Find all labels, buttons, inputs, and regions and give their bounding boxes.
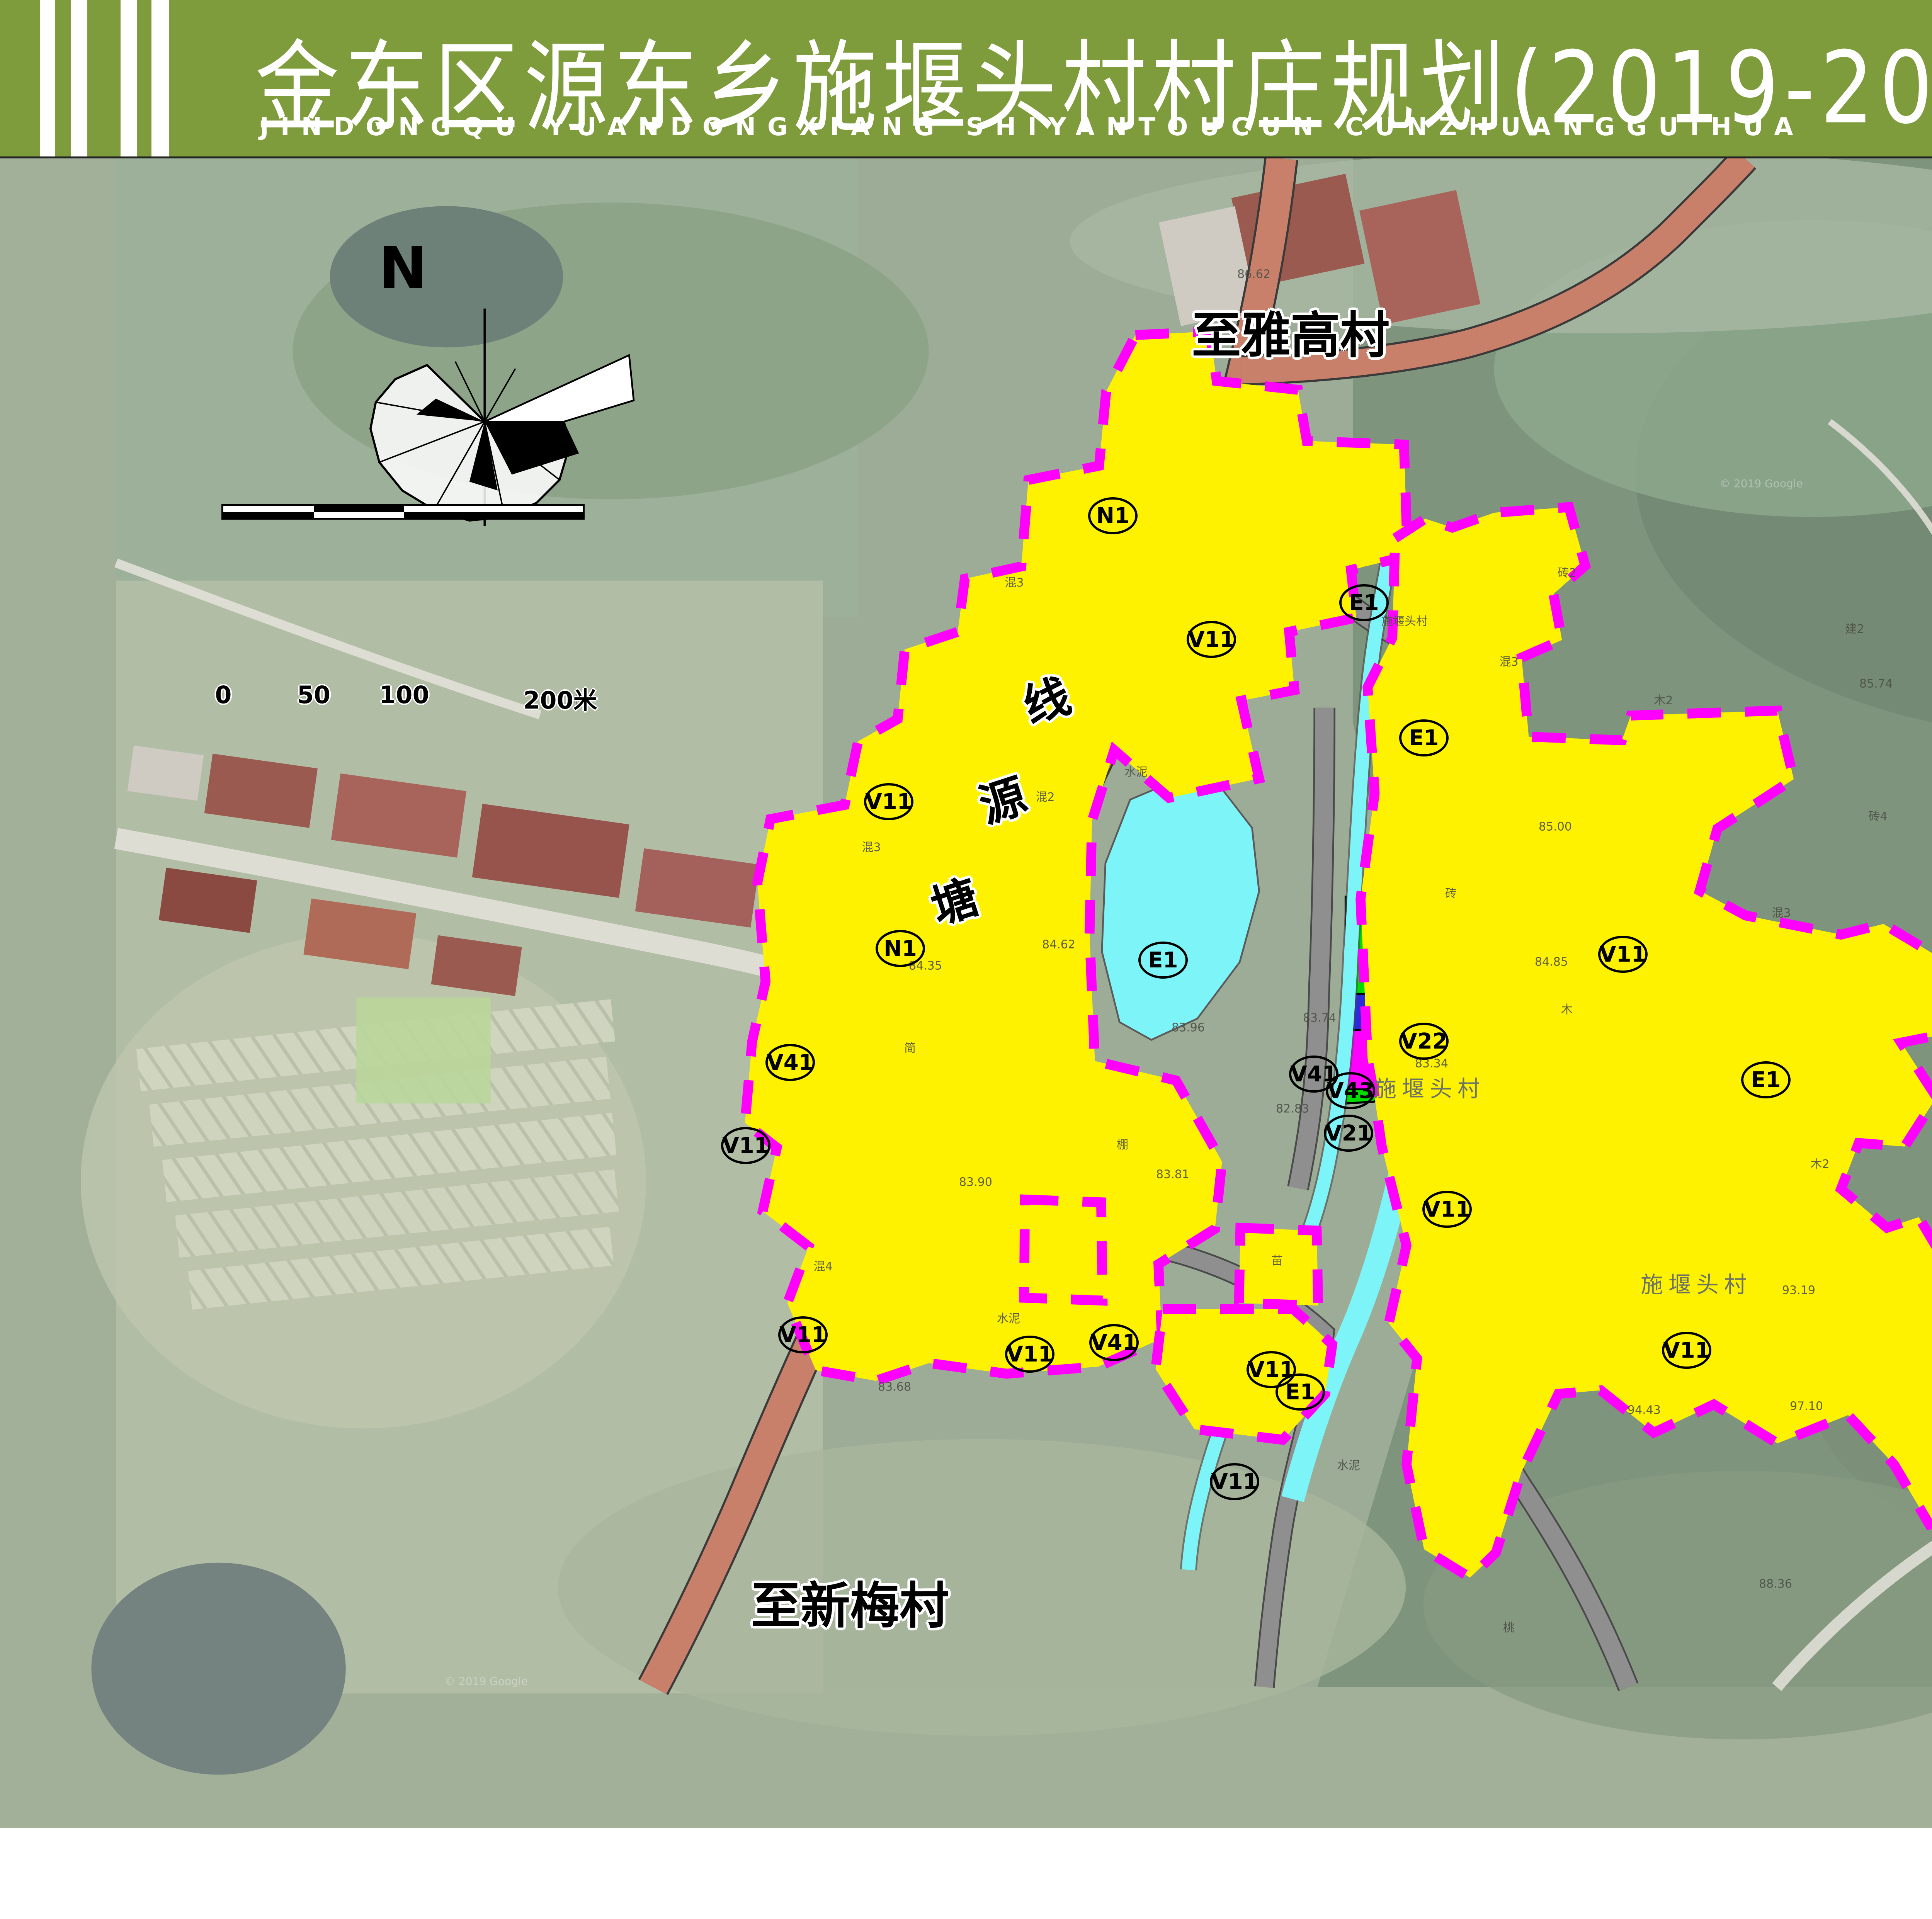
map-annotation: 83.68 bbox=[878, 1380, 911, 1394]
map-annotation: 85.00 bbox=[1539, 820, 1572, 834]
map-annotation: 简 bbox=[904, 1039, 916, 1056]
map-annotation: 施堰头村 bbox=[1381, 612, 1428, 629]
map-annotation: 木2 bbox=[1654, 691, 1673, 708]
map-annotation: 建2 bbox=[1845, 619, 1864, 636]
direction-label-xinmei: 至新梅村 bbox=[751, 1566, 949, 1637]
map-annotation: 苗 bbox=[1271, 1251, 1283, 1268]
zone-marker-v41: V41 bbox=[1089, 1324, 1139, 1361]
zone-marker-v11: V11 bbox=[1422, 1191, 1472, 1228]
header-band: 金东区源东乡施堰头村村庄规划(2019-2035) JINDONGQU YUAN… bbox=[0, 0, 1932, 156]
map-annotation: 水泥 bbox=[1124, 762, 1148, 779]
zone-marker-n1: N1 bbox=[1088, 497, 1138, 534]
map-annotation: 84.62 bbox=[1042, 938, 1075, 952]
page-subtitle: JINDONGQU YUANDONGXIANG SHIYANTOUCUN CUN… bbox=[260, 113, 1805, 141]
scale-tick-100: 100 bbox=[379, 681, 429, 709]
map-annotation: 混3 bbox=[862, 838, 881, 855]
zone-marker-v41: V41 bbox=[765, 1044, 815, 1081]
compass-north-label: N bbox=[379, 235, 427, 302]
land-use-map[interactable]: N 0 50 100 200米 至雅高村 至新梅村 线 源 塘 施堰头村 施堰头… bbox=[0, 156, 1932, 1828]
zone-marker-v11: V11 bbox=[778, 1316, 828, 1353]
map-annotation: 混2 bbox=[1036, 787, 1054, 804]
zone-marker-v11: V11 bbox=[1210, 1463, 1259, 1500]
map-annotation: 水泥 bbox=[1337, 1456, 1360, 1473]
zone-marker-e1: E1 bbox=[1741, 1061, 1791, 1098]
map-annotation: 桃 bbox=[1503, 1618, 1515, 1635]
google-watermark: © 2019 Google bbox=[444, 1675, 528, 1688]
zone-marker-e1: E1 bbox=[1138, 942, 1188, 979]
zone-marker-v11: V11 bbox=[721, 1127, 770, 1164]
header-stripe bbox=[40, 0, 55, 156]
pond-northwest bbox=[330, 206, 563, 347]
map-annotation: 85.74 bbox=[1859, 677, 1893, 691]
zone-marker-v22: V22 bbox=[1399, 1023, 1449, 1060]
map-annotation: 83.81 bbox=[1156, 1168, 1189, 1181]
google-watermark: © 2019 Google bbox=[1719, 477, 1803, 490]
zone-marker-v11: V11 bbox=[1187, 621, 1236, 658]
zone-marker-v11: V11 bbox=[864, 783, 913, 820]
map-annotation: 混4 bbox=[813, 1257, 832, 1274]
map-annotation: 93.19 bbox=[1782, 1284, 1815, 1297]
zone-marker-n1: N1 bbox=[876, 930, 925, 967]
page: N 0 50 100 200米 至雅高村 至新梅村 线 源 塘 施堰头村 施堰头… bbox=[0, 0, 1932, 1919]
zone-marker-v11: V11 bbox=[1662, 1332, 1711, 1369]
map-canvas bbox=[0, 158, 1932, 1828]
map-annotation: 混3 bbox=[1772, 903, 1791, 920]
zone-marker-e1: E1 bbox=[1339, 584, 1389, 621]
map-annotation: 木 bbox=[1561, 1000, 1573, 1017]
map-annotation: 混3 bbox=[1005, 573, 1024, 590]
zone-marker-v43: V43 bbox=[1326, 1072, 1375, 1109]
scale-tick-0: 0 bbox=[215, 681, 231, 709]
map-annotation: 砖2 bbox=[1557, 563, 1576, 580]
map-annotation: 木2 bbox=[1810, 1154, 1829, 1171]
zone-marker-e1: E1 bbox=[1276, 1373, 1325, 1411]
scale-bar bbox=[221, 504, 585, 520]
map-annotation: 94.43 bbox=[1628, 1404, 1661, 1417]
pond-southwest bbox=[91, 1563, 345, 1775]
map-annotation: 97.10 bbox=[1790, 1400, 1823, 1413]
direction-label-yagao: 至雅高村 bbox=[1192, 296, 1389, 367]
header-stripe bbox=[71, 0, 87, 156]
map-annotation: 棚 bbox=[1117, 1135, 1128, 1152]
header-stripe bbox=[151, 0, 169, 156]
zone-marker-v11: V11 bbox=[1598, 936, 1648, 973]
map-annotation: 砖 bbox=[1445, 884, 1457, 901]
map-annotation: 82.83 bbox=[1276, 1102, 1309, 1116]
map-annotation: 83.96 bbox=[1172, 1021, 1205, 1035]
map-annotation: 86.62 bbox=[1237, 268, 1270, 281]
map-annotation: 水泥 bbox=[997, 1309, 1020, 1326]
map-annotation: 83.90 bbox=[959, 1176, 992, 1189]
zone-marker-v21: V21 bbox=[1324, 1115, 1373, 1152]
map-annotation: 88.36 bbox=[1759, 1577, 1792, 1591]
zone-marker-v11: V11 bbox=[1005, 1336, 1054, 1373]
map-annotation: 混3 bbox=[1499, 652, 1518, 669]
scale-tick-50: 50 bbox=[297, 681, 330, 709]
village-name-label: 施堰头村 bbox=[1641, 1266, 1752, 1299]
map-annotation: 84.85 bbox=[1535, 955, 1568, 969]
header-stripe bbox=[121, 0, 137, 156]
scale-tick-200: 200米 bbox=[523, 681, 597, 716]
village-name-label: 施堰头村 bbox=[1374, 1071, 1485, 1103]
map-annotation: 砖4 bbox=[1868, 807, 1887, 824]
map-annotation: 83.74 bbox=[1303, 1011, 1336, 1025]
zone-marker-e1: E1 bbox=[1399, 719, 1449, 756]
